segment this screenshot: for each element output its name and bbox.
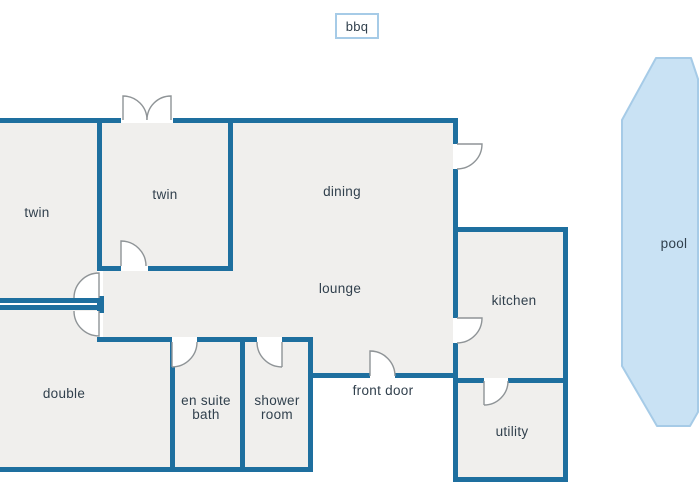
wall-segment (97, 120, 102, 271)
wall-segment (313, 373, 370, 378)
wall-segment (148, 266, 233, 271)
wall-segment (453, 477, 568, 482)
wall-segment (228, 118, 233, 271)
bbq-label: bbq (346, 19, 369, 34)
wall-segment (240, 337, 245, 472)
wall-segment (453, 118, 458, 144)
wall-segment (197, 337, 258, 342)
door-dining (457, 144, 482, 169)
wall-segment (453, 227, 568, 232)
door-opening (172, 337, 197, 342)
floor-plan-drawing (0, 0, 700, 500)
room-fill-kitchen (457, 232, 564, 379)
wall-segment (0, 305, 97, 310)
room-fill-twin-left (0, 123, 97, 300)
door-opening (121, 266, 148, 271)
room-fill-double (0, 310, 170, 469)
wall-segment (0, 467, 313, 472)
wall-segment (563, 227, 568, 482)
wall-segment (97, 266, 121, 271)
wall-segment (508, 378, 568, 383)
floor-plan-canvas: twin twin dining lounge kitchen double e… (0, 0, 700, 500)
wall-segment (453, 343, 458, 482)
pool-shape (622, 58, 698, 426)
french-door-left-leaf (123, 96, 147, 120)
wall-segment (308, 337, 313, 472)
wall-segment (453, 169, 458, 318)
wall-segment (395, 373, 453, 378)
wall-segment (453, 378, 484, 383)
wall-segment (173, 118, 458, 123)
door-opening (257, 337, 282, 342)
wall-segment (0, 118, 121, 123)
wall-segment (97, 337, 172, 342)
bbq-shape: bbq (335, 13, 379, 39)
room-fill-utility (457, 382, 564, 479)
wall-segment (0, 298, 97, 303)
french-door-right-leaf (147, 96, 171, 120)
wall-segment (97, 296, 104, 313)
